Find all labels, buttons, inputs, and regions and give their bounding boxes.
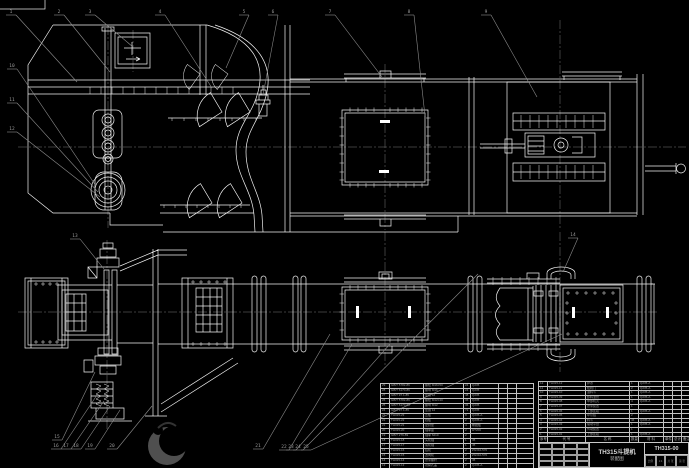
parts-list-right: 12TH315-12护罩1Q235-A11TH315-11检视门2Q235-A1…	[538, 381, 689, 443]
head-housing-plan	[58, 270, 117, 354]
balloon-number: 15	[54, 434, 60, 440]
balloon-number: 22	[281, 444, 287, 450]
top-view	[28, 25, 686, 232]
buckets	[176, 62, 252, 218]
bolt-detail	[256, 85, 270, 116]
balloon-number: 25	[303, 444, 309, 450]
drawing-subtitle: 装配图	[610, 456, 624, 462]
drive-frame-plan	[25, 278, 68, 348]
balloon-number: 24	[295, 444, 301, 450]
crescent-watermark	[148, 423, 189, 465]
drawing-title: TH315斗提机	[598, 449, 635, 456]
discharge-chute	[200, 25, 268, 232]
bom-cell	[508, 464, 517, 468]
scale-row: 比例 1:4 共 张 第 张	[645, 455, 688, 467]
title-block: TH315斗提机 装配图 TH315-00 比例 1:4 共 张 第 张	[538, 442, 689, 468]
drawing-number: TH315-00	[645, 443, 688, 455]
head-gearbox	[115, 33, 150, 68]
parts-list-left: 29GB/T 5782-86螺栓 M16×5024Q23528GB/T 6170…	[380, 383, 533, 468]
title-cell: TH315斗提机 装配图	[590, 443, 645, 467]
balloon-number: 4	[159, 9, 162, 15]
bom-cell	[499, 464, 508, 468]
bom-cell	[517, 464, 534, 468]
balloon-number: 17	[63, 443, 69, 449]
scale-value: 1:4	[656, 455, 665, 467]
balloon-number: 21	[255, 443, 261, 449]
number-cell: TH315-00 比例 1:4 共 张 第 张	[645, 443, 688, 467]
cad-canvas: 1234567891011121314151617181920212223242…	[0, 0, 689, 468]
balloon-number: 23	[288, 444, 294, 450]
bom-cell: Q235-A	[471, 464, 499, 468]
scale-label: 比例	[645, 455, 656, 467]
balloon-number: 7	[329, 9, 332, 15]
balloon-number: 13	[72, 233, 78, 239]
balloon-number: 5	[243, 9, 246, 15]
balloon-number: 6	[272, 9, 275, 15]
bom-cell: 2	[464, 464, 471, 468]
balloon-number: 20	[109, 443, 115, 449]
balloon-number: 16	[53, 443, 59, 449]
takeup-screw-eye	[677, 164, 686, 173]
border-corner	[0, 0, 45, 9]
signature-grid	[539, 443, 590, 467]
bom-cell: 观察孔盖	[424, 464, 464, 468]
balloon-number: 8	[408, 9, 411, 15]
takeup-section-top	[469, 72, 686, 215]
balloon-number: 18	[73, 443, 79, 449]
balloon-number: 19	[87, 443, 93, 449]
balloon-number: 3	[89, 9, 92, 15]
balloon-number: 1	[10, 9, 13, 15]
balloon-number: 11	[9, 97, 15, 103]
bom-cell: TH315-13	[390, 464, 424, 468]
bom-cell: 13	[381, 464, 390, 468]
balloon-number: 10	[9, 63, 15, 69]
takeup-section-plan	[487, 267, 655, 361]
head-flange-box-plan	[182, 278, 233, 348]
balloon-number: 14	[570, 232, 576, 238]
balloon-number: 2	[58, 9, 61, 15]
casing-flanges-plan	[252, 276, 651, 352]
sheet-number: 第 张	[676, 455, 688, 467]
balloon-number: 12	[9, 126, 15, 132]
sheet-total: 共 张	[665, 455, 676, 467]
balloon-number: 9	[485, 9, 488, 15]
